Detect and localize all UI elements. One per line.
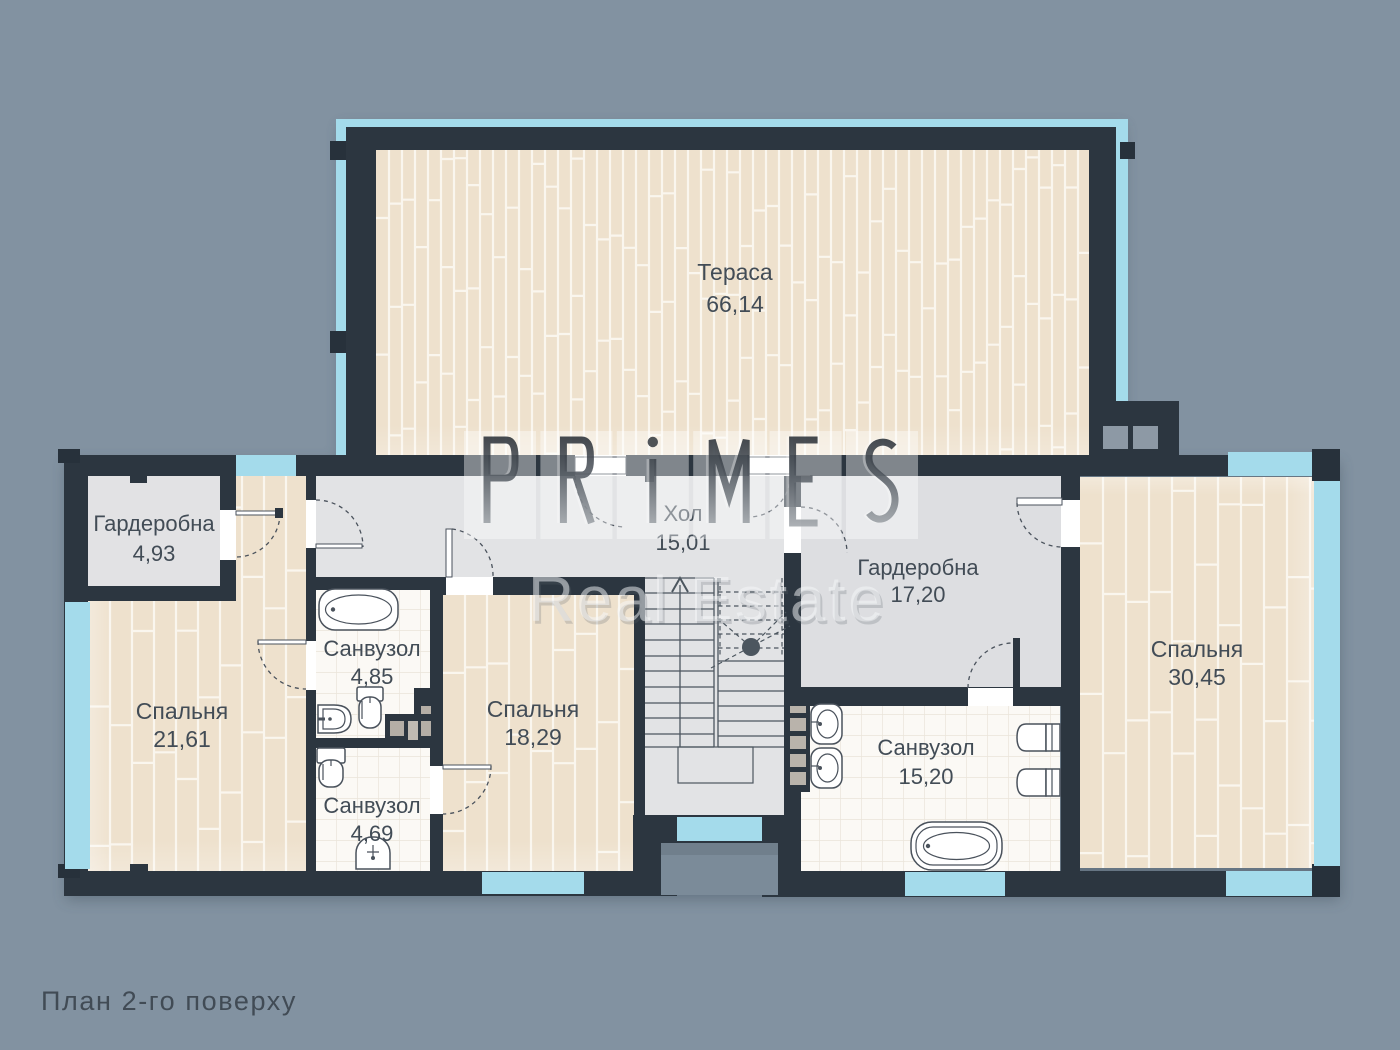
svg-text:18,29: 18,29: [504, 724, 562, 750]
svg-text:Real Estate: Real Estate: [528, 563, 886, 635]
svg-text:Тераса: Тераса: [697, 259, 773, 285]
svg-text:План 2-го поверху: План 2-го поверху: [41, 986, 297, 1016]
svg-text:4,69: 4,69: [351, 821, 394, 846]
svg-text:Санвузол: Санвузол: [323, 793, 420, 818]
svg-text:Спальня: Спальня: [1151, 636, 1243, 662]
svg-text:21,61: 21,61: [153, 726, 211, 752]
svg-text:Санвузол: Санвузол: [323, 636, 420, 661]
svg-text:15,20: 15,20: [898, 764, 953, 789]
svg-text:Гардеробна: Гардеробна: [93, 511, 215, 536]
svg-text:17,20: 17,20: [890, 582, 945, 607]
svg-text:4,85: 4,85: [351, 664, 394, 689]
svg-text:4,93: 4,93: [133, 541, 176, 566]
svg-text:Спальня: Спальня: [136, 698, 228, 724]
svg-text:30,45: 30,45: [1168, 664, 1226, 690]
svg-text:66,14: 66,14: [706, 291, 764, 317]
svg-text:Санвузол: Санвузол: [877, 735, 974, 760]
svg-text:Спальня: Спальня: [487, 696, 579, 722]
